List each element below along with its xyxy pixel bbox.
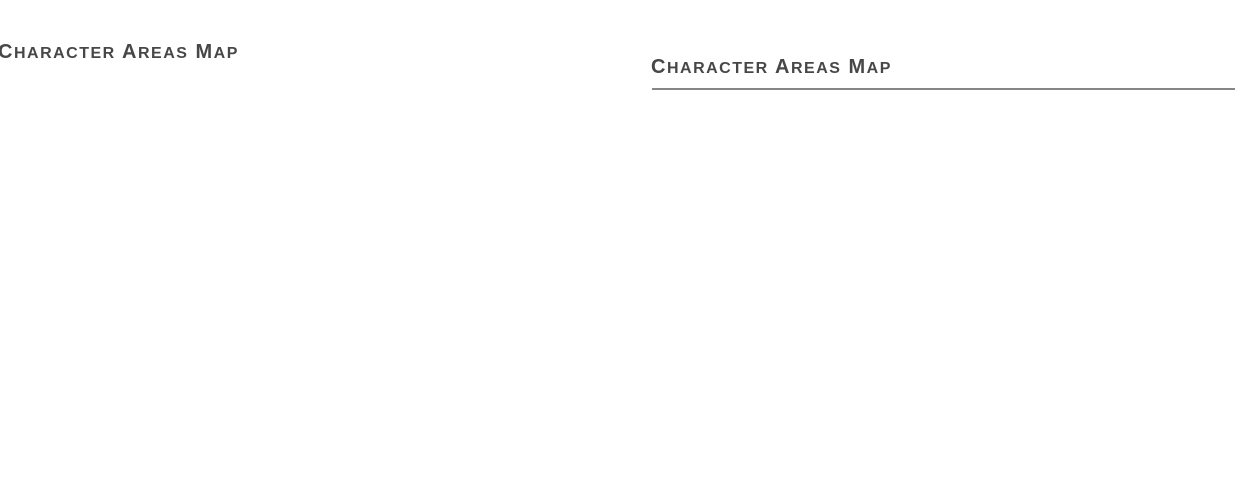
svg-text:CHARACTER AREAS MAP: CHARACTER AREAS MAP: [651, 56, 892, 78]
svg-text:CHARACTER AREAS MAP: CHARACTER AREAS MAP: [0, 41, 239, 63]
